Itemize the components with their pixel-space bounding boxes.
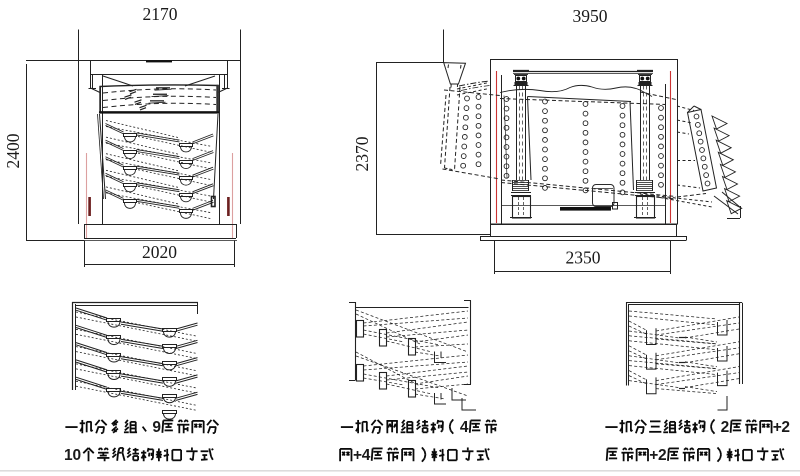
svg-text:+: + — [773, 419, 782, 436]
svg-text:9: 9 — [152, 419, 161, 436]
svg-text:3950: 3950 — [573, 6, 608, 26]
svg-text:+: + — [649, 447, 658, 464]
svg-text:2400: 2400 — [3, 133, 23, 168]
svg-text:2: 2 — [721, 419, 730, 436]
svg-text:0: 0 — [72, 447, 81, 464]
svg-text:2370: 2370 — [352, 136, 372, 171]
svg-text:+: + — [353, 447, 362, 464]
svg-text:4: 4 — [362, 447, 371, 464]
svg-text:2350: 2350 — [566, 248, 601, 268]
svg-text:4: 4 — [460, 419, 469, 436]
svg-text:2170: 2170 — [143, 4, 178, 24]
svg-text:2020: 2020 — [142, 242, 177, 262]
svg-text:2: 2 — [781, 419, 790, 436]
svg-text:2: 2 — [658, 447, 667, 464]
